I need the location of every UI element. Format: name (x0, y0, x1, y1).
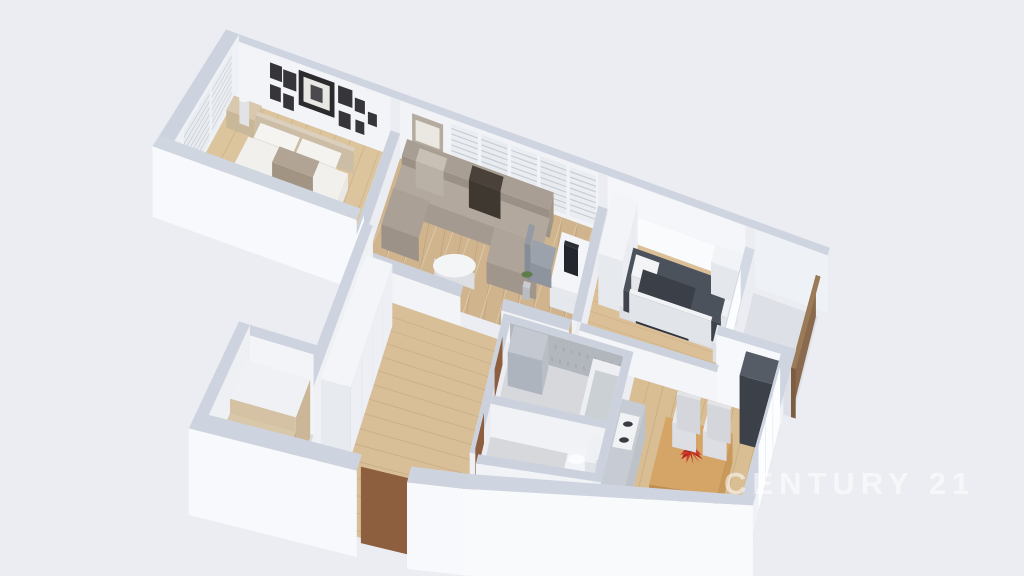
desk-monitor (564, 245, 578, 277)
cooktop-burner (623, 421, 633, 426)
bathroom-tile-dots (555, 345, 557, 349)
toilet-seat (568, 455, 585, 464)
dining-chair-back (707, 404, 731, 444)
kids-wardrobe (598, 253, 623, 312)
balcony-railing (791, 368, 796, 419)
bathroom-tile-dots (587, 355, 589, 359)
cooktop-burner (619, 437, 629, 442)
plant-pot (523, 287, 530, 301)
bathroom-tile-dots (559, 359, 561, 363)
plant-leaves (521, 271, 532, 277)
bathroom-tile-dots (567, 362, 569, 366)
floorplan-3d-render: CENTURY 21 (0, 0, 1024, 576)
bathroom-tile-dots (571, 350, 573, 354)
bathroom-tile-dots (583, 366, 585, 370)
century21-watermark: CENTURY 21 (724, 466, 975, 502)
entry-door (361, 467, 411, 555)
bathroom-tile-dots (551, 357, 553, 361)
table-lamp (239, 96, 249, 102)
coffee-table (433, 254, 476, 278)
bathroom-tile-dots (575, 364, 577, 368)
bathroom-tile-dots (579, 352, 581, 356)
hall-south-exterior-wall (407, 482, 464, 575)
bathroom-tile-dots (563, 348, 565, 352)
dining-chair-back (677, 395, 701, 435)
